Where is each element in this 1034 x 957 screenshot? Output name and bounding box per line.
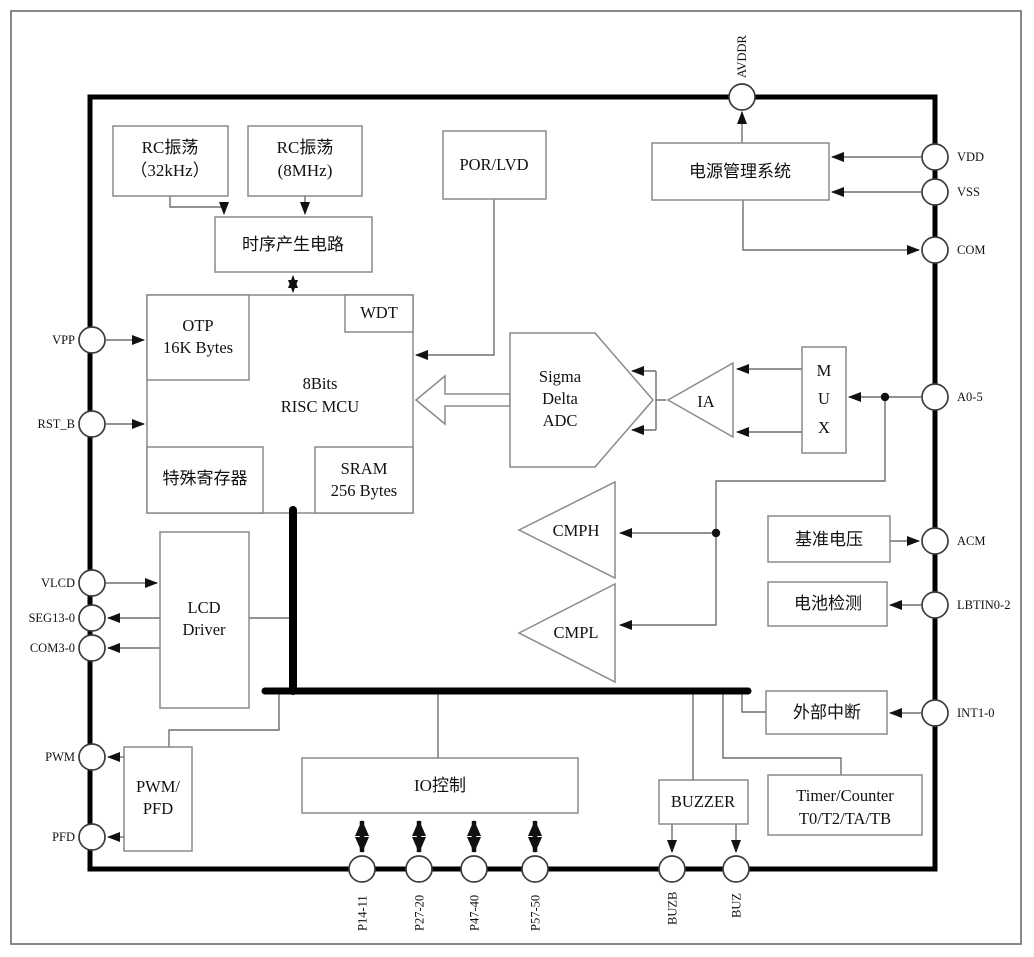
diagram-canvas: RC振荡 （32kHz） RC振荡 (8MHz) 时序产生电路 POR/LVD … [0,0,1034,957]
pin-label-pwm: PWM [45,750,75,764]
wdt-label: WDT [360,303,398,322]
pin-buzb [659,856,685,882]
mcu-label-line2: RISC MCU [281,397,359,416]
vref-label: 基准电压 [795,530,863,549]
pin-label-vss: VSS [957,185,980,199]
pin-com [922,237,948,263]
sram-label-line2: 256 Bytes [331,481,397,500]
cmph-label: CMPH [553,521,600,540]
timing-label: 时序产生电路 [242,235,344,254]
pin-acm [922,528,948,554]
pin-label-acm: ACM [957,534,985,548]
timer-label-line1: Timer/Counter [796,786,894,805]
mux-label-line3: X [818,418,830,437]
pin-label-p47: P47-40 [468,895,482,931]
rc32-label-line1: RC振荡 [142,138,199,157]
pin-label-buzb: BUZB [666,892,680,925]
pin-pwm [79,744,105,770]
buzzer-label: BUZZER [671,792,735,811]
pin-p47 [461,856,487,882]
pin-label-com3: COM3-0 [30,641,75,655]
pin-com3 [79,635,105,661]
pin-vss [922,179,948,205]
pin-label-vpp: VPP [52,333,75,347]
battery-label: 电池检测 [794,594,862,613]
pin-lbtin [922,592,948,618]
block-power: 电源管理系统 [652,143,829,200]
block-sram: SRAM 256 Bytes [315,447,413,513]
sfr-label: 特殊寄存器 [163,469,248,488]
cmpl-label: CMPL [554,623,599,642]
pin-vlcd [79,570,105,596]
pin-p27 [406,856,432,882]
pin-label-vlcd: VLCD [41,576,75,590]
block-extint: 外部中断 [766,691,887,734]
power-label: 电源管理系统 [689,162,791,181]
pin-p14 [349,856,375,882]
adc-label-line2: Delta [542,389,578,408]
mux-label-line2: U [818,389,830,408]
block-timer: Timer/Counter T0/T2/TA/TB [768,775,922,835]
pin-vpp [79,327,105,353]
pin-a05 [922,384,948,410]
lcd-label-line2: Driver [182,620,226,639]
block-vref: 基准电压 [768,516,890,562]
pin-label-p14: P14-11 [356,895,370,931]
lcd-label-line1: LCD [188,598,221,617]
pin-p57 [522,856,548,882]
pin-int10 [922,700,948,726]
por-label: POR/LVD [459,155,528,174]
ia-label: IA [697,392,714,411]
block-rc32: RC振荡 （32kHz） [113,126,228,196]
block-battery: 电池检测 [768,582,887,626]
pin-label-avddr: AVDDR [735,35,749,78]
block-por: POR/LVD [443,131,546,199]
block-otp: OTP 16K Bytes [147,295,249,380]
block-iocontrol: IO控制 [302,758,578,813]
block-wdt: WDT [345,295,413,332]
pin-label-p57: P57-50 [529,895,543,931]
pin-label-lbtin: LBTIN0-2 [957,598,1010,612]
pin-label-int10: INT1-0 [957,706,995,720]
block-pwmpfd: PWM/ PFD [124,747,192,851]
junction-dot-a05 [881,393,889,401]
pin-label-com: COM [957,243,985,257]
adc-label-line1: Sigma [539,367,582,386]
otp-label-line2: 16K Bytes [163,338,233,357]
iocontrol-label: IO控制 [414,776,466,795]
rc8-label-line1: RC振荡 [277,138,334,157]
block-mux: M U X [802,347,846,453]
pin-seg [79,605,105,631]
rc8-label-line2: (8MHz) [278,161,333,180]
block-timing: 时序产生电路 [215,217,372,272]
pin-label-rstb: RST_B [37,417,75,431]
block-buzzer: BUZZER [659,780,748,824]
adc-label-line3: ADC [543,411,578,430]
pin-label-seg: SEG13-0 [28,611,75,625]
pwmpfd-label-line2: PFD [143,799,173,818]
mcu-block-diagram: RC振荡 （32kHz） RC振荡 (8MHz) 时序产生电路 POR/LVD … [0,0,1034,957]
junction-dot-cmp [712,529,720,537]
pin-pfd [79,824,105,850]
rc32-label-line2: （32kHz） [130,161,209,180]
otp-label-line1: OTP [182,316,213,335]
pin-label-pfd: PFD [52,830,75,844]
block-rc8: RC振荡 (8MHz) [248,126,362,196]
pin-label-buz: BUZ [730,893,744,918]
pin-label-vdd: VDD [957,150,984,164]
pin-avddr [729,84,755,110]
pwmpfd-label-line1: PWM/ [136,777,180,796]
pin-rstb [79,411,105,437]
block-sfr: 特殊寄存器 [147,447,263,513]
pin-vdd [922,144,948,170]
mcu-label-line1: 8Bits [303,374,338,393]
pin-label-a05: A0-5 [957,390,983,404]
pin-buz [723,856,749,882]
pin-label-p27: P27-20 [413,895,427,931]
timer-label-line2: T0/T2/TA/TB [799,809,891,828]
mux-label-line1: M [817,361,832,380]
block-lcd: LCD Driver [160,532,249,708]
sram-label-line1: SRAM [341,459,388,478]
extint-label: 外部中断 [793,703,861,722]
